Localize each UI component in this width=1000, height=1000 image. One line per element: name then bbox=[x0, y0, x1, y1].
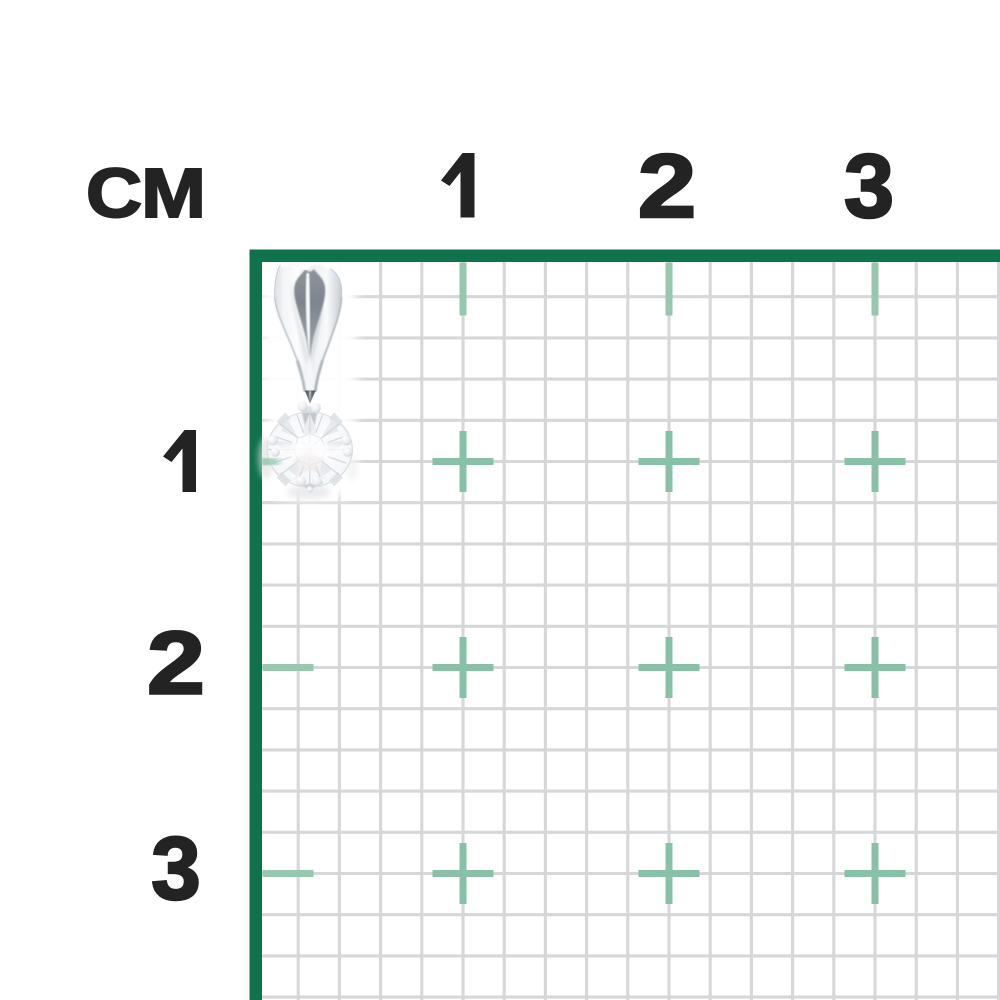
svg-text:СМ: СМ bbox=[86, 154, 206, 232]
svg-text:3: 3 bbox=[151, 818, 201, 918]
svg-text:2: 2 bbox=[147, 613, 205, 713]
svg-text:3: 3 bbox=[844, 137, 894, 237]
svg-text:2: 2 bbox=[638, 135, 697, 236]
